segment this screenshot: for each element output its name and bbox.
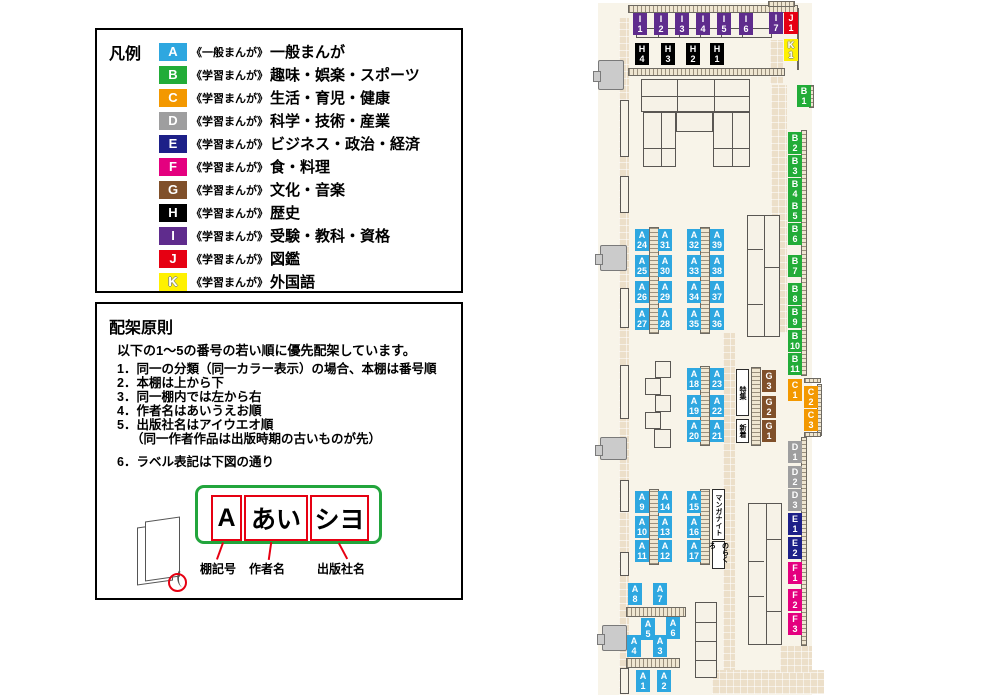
wall-shelf bbox=[620, 552, 629, 576]
display-table bbox=[655, 361, 671, 378]
walkway-hatch-bottomright bbox=[780, 646, 812, 673]
shelf-label-a14: A14 bbox=[658, 491, 672, 513]
shelf-label-i6: I6 bbox=[739, 13, 753, 35]
shelf-label-a4: A4 bbox=[627, 635, 641, 657]
legend-series: 《学習まんが》 bbox=[191, 228, 268, 244]
legend-chip-j: J bbox=[159, 250, 187, 268]
shelf-label-a22: A22 bbox=[710, 395, 724, 417]
legend-series: 《学習まんが》 bbox=[191, 90, 268, 106]
wall-shelf bbox=[620, 365, 629, 419]
shelf-label-e2: E2 bbox=[788, 537, 802, 559]
shelf-label-d1: D1 bbox=[788, 441, 802, 463]
text-shelf-のらくろ: のらくろ bbox=[712, 541, 725, 569]
shelf-label-h4: H4 bbox=[635, 43, 649, 65]
legend-item-d: D《学習まんが》科学・技術・産業 bbox=[159, 109, 420, 132]
shelf-label-c3: C3 bbox=[804, 409, 818, 431]
shelf-label-b2: B2 bbox=[788, 132, 802, 154]
legend-item-c: C《学習まんが》生活・育児・健康 bbox=[159, 86, 420, 109]
shelf-label-i7: I7 bbox=[769, 12, 783, 34]
legend-series: 《学習まんが》 bbox=[191, 67, 268, 83]
shelf-label-d2: D2 bbox=[788, 466, 802, 488]
shelf-label-j1: J1 bbox=[784, 12, 798, 34]
shelf-label-a18: A18 bbox=[687, 368, 701, 390]
label-example-publisher: シヨ bbox=[310, 495, 369, 541]
legend-item-e: E《学習まんが》ビジネス・政治・経済 bbox=[159, 132, 420, 155]
legend-panel: 凡例 A《一般まんが》一般まんがB《学習まんが》趣味・娯楽・スポーツC《学習まん… bbox=[95, 28, 463, 293]
display-table bbox=[654, 429, 671, 448]
principles-title: 配架原則 bbox=[109, 314, 173, 338]
display-table bbox=[695, 602, 717, 678]
display-table bbox=[655, 395, 671, 412]
shelf-label-a12: A12 bbox=[658, 540, 672, 562]
door-icon bbox=[600, 437, 627, 460]
shelf-label-b8: B8 bbox=[788, 283, 802, 305]
legend-item-h: H《学習まんが》歴史 bbox=[159, 201, 420, 224]
shelf-label-a33: A33 bbox=[687, 255, 701, 277]
shelf-label-a36: A36 bbox=[710, 308, 724, 330]
legend-chip-g: G bbox=[159, 181, 187, 199]
legend-series: 《学習まんが》 bbox=[191, 274, 268, 290]
shelf-label-a37: A37 bbox=[710, 281, 724, 303]
shelf-label-c1: C1 bbox=[788, 379, 802, 401]
shelf-label-a30: A30 bbox=[658, 255, 672, 277]
rule-line-4: 4．作者名はあいうえお順 bbox=[117, 404, 436, 418]
wall-shelf bbox=[620, 288, 629, 328]
wall-shelf-strip bbox=[804, 378, 821, 383]
shelf-label-i2: I2 bbox=[654, 13, 668, 35]
wall-hatch-topright bbox=[770, 40, 783, 84]
pointer-line bbox=[338, 543, 348, 560]
label-position-ring bbox=[168, 573, 187, 592]
text-shelf-特集: 特集 bbox=[736, 369, 749, 416]
shelf-label-a26: A26 bbox=[635, 281, 649, 303]
pointer-line bbox=[216, 542, 224, 560]
shelf-block bbox=[748, 503, 782, 645]
text-shelf-新着: 新着 bbox=[736, 419, 749, 443]
door-icon bbox=[602, 625, 627, 651]
wall-shelf bbox=[620, 668, 629, 694]
shelf-label-a3: A3 bbox=[653, 635, 667, 657]
book-icon bbox=[135, 516, 187, 592]
display-table bbox=[645, 412, 661, 429]
legend-category: 一般まんが bbox=[270, 41, 345, 62]
rule-line-6: （同一作者作品は出版時期の古いものが先） bbox=[117, 432, 436, 446]
wall-shelf bbox=[620, 480, 629, 512]
legend-series: 《学習まんが》 bbox=[191, 182, 268, 198]
shelf-label-a9: A9 bbox=[635, 491, 649, 513]
legend-category: ビジネス・政治・経済 bbox=[270, 133, 420, 154]
shelf-block bbox=[713, 112, 750, 167]
label-example-author: あい bbox=[244, 495, 308, 541]
shelf-label-h2: H2 bbox=[686, 43, 700, 65]
shelf-label-k1: K1 bbox=[784, 39, 798, 61]
shelf-label-a28: A28 bbox=[658, 308, 672, 330]
wall-shelf bbox=[620, 100, 629, 157]
shelf-label-b1: B1 bbox=[797, 85, 811, 107]
shelf-label-b7: B7 bbox=[788, 255, 802, 277]
shelf-label-i4: I4 bbox=[696, 13, 710, 35]
legend-series: 《学習まんが》 bbox=[191, 251, 268, 267]
legend-item-j: J《学習まんが》図鑑 bbox=[159, 247, 420, 270]
legend-category: 歴史 bbox=[270, 202, 300, 223]
principles-panel: 配架原則 以下の1～5の番号の若い順に優先配架しています。 1．同一の分類（同一… bbox=[95, 302, 463, 600]
shelf-label-b9: B9 bbox=[788, 306, 802, 328]
text-shelf-マンガナイト: マンガナイト bbox=[712, 489, 725, 540]
legend-series: 《学習まんが》 bbox=[191, 159, 268, 175]
shelf-block bbox=[747, 215, 780, 337]
caption-author: 作者名 bbox=[249, 560, 285, 577]
pointer-line bbox=[268, 542, 272, 560]
door-icon bbox=[600, 245, 627, 271]
legend-item-k: K《学習まんが》外国語 bbox=[159, 270, 420, 293]
shelf-label-b11: B11 bbox=[788, 353, 802, 375]
legend-item-i: I《学習まんが》受験・教科・資格 bbox=[159, 224, 420, 247]
walkway-hatch-bottom bbox=[712, 670, 824, 694]
legend-chip-k: K bbox=[159, 273, 187, 291]
shelf-label-a15: A15 bbox=[687, 491, 701, 513]
wall-shelf-strip bbox=[628, 68, 785, 76]
legend-series: 《一般まんが》 bbox=[191, 44, 268, 60]
shelf-label-g1: G1 bbox=[762, 420, 776, 442]
shelf-label-a6: A6 bbox=[666, 617, 680, 639]
rule-line-7: 6．ラベル表記は下図の通り bbox=[117, 455, 436, 469]
shelf-label-a19: A19 bbox=[687, 395, 701, 417]
store-floor-guide: I1I2I3I4I5I6I7J1K1H4H3H2H1B1B2B3B4B5B6B7… bbox=[0, 0, 1000, 700]
legend-chip-h: H bbox=[159, 204, 187, 222]
shelf-label-b10: B10 bbox=[788, 330, 802, 352]
door-icon bbox=[598, 60, 624, 90]
caption-shelf-code: 棚記号 bbox=[200, 560, 236, 577]
shelf-label-b5: B5 bbox=[788, 200, 802, 222]
legend-category: 趣味・娯楽・スポーツ bbox=[270, 64, 420, 85]
legend-series: 《学習まんが》 bbox=[191, 113, 268, 129]
shelf-label-a20: A20 bbox=[687, 420, 701, 442]
shelf-label-b3: B3 bbox=[788, 155, 802, 177]
shelf-label-a25: A25 bbox=[635, 255, 649, 277]
shelf-label-a31: A31 bbox=[658, 229, 672, 251]
shelf-label-a10: A10 bbox=[635, 516, 649, 538]
legend-category: 生活・育児・健康 bbox=[270, 87, 390, 108]
label-example-shelf-code: A bbox=[211, 495, 242, 541]
shelf-label-a39: A39 bbox=[710, 229, 724, 251]
shelf-label-a17: A17 bbox=[687, 540, 701, 562]
legend-category: 外国語 bbox=[270, 271, 315, 292]
legend-chip-b: B bbox=[159, 66, 187, 84]
shelf-label-b6: B6 bbox=[788, 223, 802, 245]
shelf-label-a21: A21 bbox=[710, 420, 724, 442]
shelf-label-d3: D3 bbox=[788, 489, 802, 511]
shelf-label-a13: A13 bbox=[658, 516, 672, 538]
shelf-label-b4: B4 bbox=[788, 178, 802, 200]
shelf-label-a24: A24 bbox=[635, 229, 649, 251]
shelf-label-a32: A32 bbox=[687, 229, 701, 251]
shelf-label-a35: A35 bbox=[687, 308, 701, 330]
island-shelf-strip bbox=[626, 607, 686, 617]
shelf-label-f2: F2 bbox=[788, 589, 802, 611]
legend-rows: A《一般まんが》一般まんがB《学習まんが》趣味・娯楽・スポーツC《学習まんが》生… bbox=[159, 40, 420, 293]
island-shelf-strip bbox=[751, 367, 761, 446]
shelf-block bbox=[643, 112, 676, 167]
wall-shelf bbox=[620, 176, 629, 213]
shelf-label-a11: A11 bbox=[635, 540, 649, 562]
shelf-label-a8: A8 bbox=[628, 583, 642, 605]
shelf-label-f1: F1 bbox=[788, 562, 802, 584]
principles-rules: 1．同一の分類（同一カラー表示）の場合、本棚は番号順2．本棚は上から下3．同一棚… bbox=[117, 362, 436, 469]
shelf-label-e1: E1 bbox=[788, 513, 802, 535]
shelf-label-a29: A29 bbox=[658, 281, 672, 303]
shelf-label-i3: I3 bbox=[675, 13, 689, 35]
shelf-label-f3: F3 bbox=[788, 613, 802, 635]
shelf-label-a34: A34 bbox=[687, 281, 701, 303]
legend-chip-a: A bbox=[159, 43, 187, 61]
island-shelf-strip bbox=[700, 366, 710, 446]
shelf-label-i1: I1 bbox=[633, 13, 647, 35]
shelf-label-a2: A2 bbox=[657, 670, 671, 692]
legend-chip-d: D bbox=[159, 112, 187, 130]
display-table bbox=[645, 378, 661, 395]
legend-chip-c: C bbox=[159, 89, 187, 107]
legend-item-b: B《学習まんが》趣味・娯楽・スポーツ bbox=[159, 63, 420, 86]
rule-line-2: 2．本棚は上から下 bbox=[117, 376, 436, 390]
label-example-frame: A あい シヨ bbox=[195, 485, 382, 544]
legend-category: 食・料理 bbox=[270, 156, 330, 177]
shelf-label-a16: A16 bbox=[687, 516, 701, 538]
legend-category: 受験・教科・資格 bbox=[270, 225, 390, 246]
legend-series: 《学習まんが》 bbox=[191, 205, 268, 221]
rule-line-3: 3．同一棚内では左から右 bbox=[117, 390, 436, 404]
shelf-label-h1: H1 bbox=[710, 43, 724, 65]
island-shelf-strip bbox=[626, 658, 680, 668]
legend-chip-i: I bbox=[159, 227, 187, 245]
shelf-label-a27: A27 bbox=[635, 308, 649, 330]
legend-title: 凡例 bbox=[109, 40, 141, 64]
shelf-block bbox=[676, 112, 713, 132]
shelf-label-g2: G2 bbox=[762, 396, 776, 418]
legend-item-f: F《学習まんが》食・料理 bbox=[159, 155, 420, 178]
book-front-cover bbox=[145, 517, 180, 582]
legend-category: 図鑑 bbox=[270, 248, 300, 269]
island-shelf-strip bbox=[700, 227, 710, 334]
rule-line-1: 1．同一の分類（同一カラー表示）の場合、本棚は番号順 bbox=[117, 362, 436, 376]
shelf-label-a1: A1 bbox=[636, 670, 650, 692]
wall-shelf-strip bbox=[768, 1, 795, 7]
shelf-label-c2: C2 bbox=[804, 386, 818, 408]
caption-publisher: 出版社名 bbox=[317, 560, 365, 577]
legend-category: 文化・音楽 bbox=[270, 179, 345, 200]
shelf-label-i5: I5 bbox=[717, 13, 731, 35]
legend-item-g: G《学習まんが》文化・音楽 bbox=[159, 178, 420, 201]
principles-intro: 以下の1～5の番号の若い順に優先配架しています。 bbox=[117, 340, 416, 359]
legend-category: 科学・技術・産業 bbox=[270, 110, 390, 131]
legend-series: 《学習まんが》 bbox=[191, 136, 268, 152]
legend-item-a: A《一般まんが》一般まんが bbox=[159, 40, 420, 63]
legend-chip-f: F bbox=[159, 158, 187, 176]
shelf-block bbox=[641, 79, 750, 112]
rule-line-5: 5．出版社名はアイウエオ順 bbox=[117, 418, 436, 432]
shelf-label-g3: G3 bbox=[762, 370, 776, 392]
shelf-label-a38: A38 bbox=[710, 255, 724, 277]
shelf-label-a23: A23 bbox=[710, 368, 724, 390]
legend-chip-e: E bbox=[159, 135, 187, 153]
shelf-label-h3: H3 bbox=[661, 43, 675, 65]
shelf-label-a7: A7 bbox=[653, 583, 667, 605]
